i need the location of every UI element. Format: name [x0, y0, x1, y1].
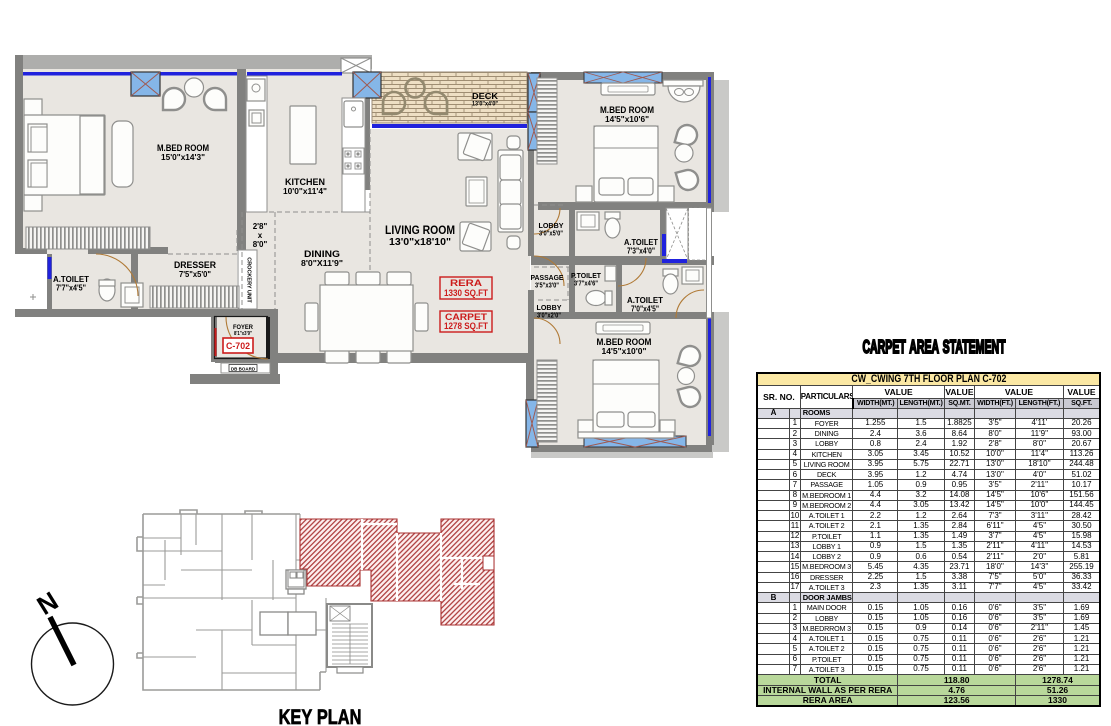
svg-text:7'7"x4'5": 7'7"x4'5": [56, 284, 86, 293]
svg-text:3'0"x2'0": 3'0"x2'0": [537, 313, 561, 320]
svg-text:A.TOILET: A.TOILET: [53, 274, 90, 284]
svg-text:P.TOILET: P.TOILET: [571, 271, 601, 280]
svg-text:8'1"x3'9": 8'1"x3'9": [234, 331, 252, 337]
svg-text:7'0"x4'5": 7'0"x4'5": [631, 305, 659, 314]
svg-text:3'7"x4'6": 3'7"x4'6": [574, 281, 598, 288]
svg-text:3'0"x5'0": 3'0"x5'0": [539, 231, 563, 238]
svg-text:15'0"x14'3": 15'0"x14'3": [161, 152, 205, 162]
svg-text:2'8": 2'8": [253, 222, 268, 231]
svg-text:LOBBY: LOBBY: [537, 303, 562, 312]
svg-text:CROCKERY UNIT: CROCKERY UNIT: [246, 257, 252, 303]
svg-text:3'5"x3'0": 3'5"x3'0": [535, 283, 559, 290]
svg-text:DECK: DECK: [472, 92, 498, 101]
svg-text:8'0": 8'0": [253, 240, 268, 249]
svg-text:14'5"x10'6": 14'5"x10'6": [605, 114, 649, 124]
svg-text:8'0"X11'9": 8'0"X11'9": [301, 258, 343, 268]
svg-text:13'0"x18'10": 13'0"x18'10": [389, 236, 451, 248]
svg-text:A.TOILET: A.TOILET: [624, 237, 659, 247]
svg-text:A.TOILET: A.TOILET: [627, 295, 664, 305]
svg-text:14'5"x10'0": 14'5"x10'0": [602, 346, 647, 356]
svg-text:7'5"x5'0": 7'5"x5'0": [179, 269, 211, 279]
svg-text:LIVING ROOM: LIVING ROOM: [385, 223, 455, 237]
svg-text:10'0"x11'4": 10'0"x11'4": [283, 186, 327, 196]
svg-text:C-702: C-702: [226, 341, 250, 351]
svg-text:13'0"x4'0": 13'0"x4'0": [472, 102, 498, 108]
svg-text:DB BOARD: DB BOARD: [231, 367, 256, 372]
svg-text:x: x: [258, 231, 263, 240]
svg-text:PASSAGE: PASSAGE: [531, 273, 564, 282]
svg-text:LOBBY: LOBBY: [539, 221, 564, 230]
svg-text:N: N: [32, 585, 64, 620]
svg-text:7'3"x4'0": 7'3"x4'0": [627, 247, 655, 256]
svg-text:1330 SQ.FT: 1330 SQ.FT: [444, 288, 488, 298]
svg-text:1278 SQ.FT: 1278 SQ.FT: [444, 321, 488, 331]
